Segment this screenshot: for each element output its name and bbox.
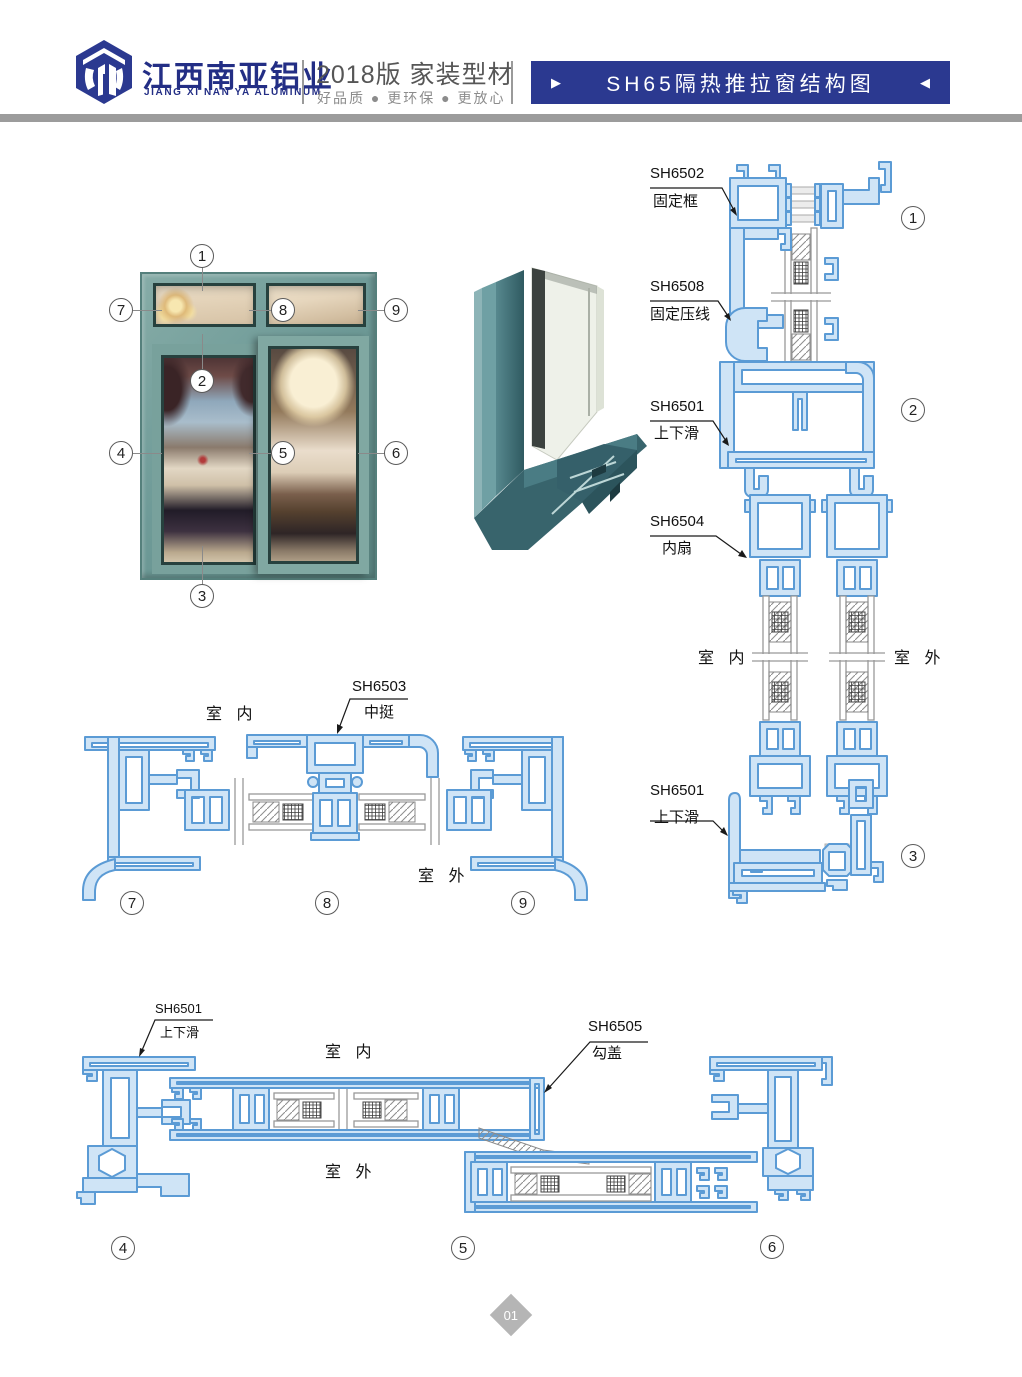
- section-callout-7: 7: [120, 891, 144, 915]
- section-callout-9: 9: [511, 891, 535, 915]
- callout-line-6: [358, 453, 386, 454]
- thermal-break-strips: [786, 184, 820, 225]
- callout-line-2: [202, 334, 203, 370]
- label-sh6503-name: 中挺: [364, 701, 394, 722]
- label-sh6503-code: SH6503: [352, 678, 406, 695]
- label-sh6501-jamb-code: SH6501: [155, 1001, 202, 1016]
- section-callout-8: 8: [315, 891, 339, 915]
- label-sh6508-code: SH6508: [650, 278, 704, 295]
- header-divider-1: [302, 60, 304, 104]
- horizontal-section-diagram-top: [85, 690, 585, 925]
- page-title: SH65隔热推拉窗结构图: [606, 68, 875, 98]
- horizontal-section-diagram-bottom: [75, 1000, 1010, 1265]
- section-callout-3: 3: [901, 844, 925, 868]
- section-callout-2: 2: [901, 398, 925, 422]
- header-rule: [0, 114, 1022, 122]
- callout-5: 5: [271, 441, 295, 465]
- callout-line-5: [249, 453, 272, 454]
- label-outdoor-a: 室 外: [894, 644, 945, 668]
- label-indoor-b: 室 内: [206, 700, 257, 724]
- sash-section-inner: [745, 495, 815, 814]
- company-name-en: JIANG XI NAN YA ALUMINUM: [144, 87, 322, 98]
- page-number-badge: 01: [490, 1294, 532, 1336]
- callout-4: 4: [109, 441, 133, 465]
- edition-text: 2018版 家装型材: [316, 55, 514, 91]
- callout-9: 9: [384, 298, 408, 322]
- label-sh6502-code: SH6502: [650, 165, 704, 182]
- catalog-page: 江西南亚铝业 JIANG XI NAN YA ALUMINUM 2018版 家装…: [0, 0, 1022, 1377]
- callout-7: 7: [109, 298, 133, 322]
- label-sh6504-code: SH6504: [650, 513, 704, 530]
- corner-profile-render: [432, 262, 657, 587]
- label-sh6501-jamb-name: 上下滑: [160, 1022, 199, 1041]
- label-outdoor-b: 室 外: [418, 862, 469, 886]
- label-sh6508-name: 固定压线: [650, 303, 710, 324]
- sash-section-outer: [822, 495, 892, 814]
- label-sh6505-code: SH6505: [588, 1018, 642, 1035]
- callout-line-1: [202, 264, 203, 291]
- label-outdoor-c: 室 外: [325, 1158, 376, 1182]
- page-number: 01: [504, 1308, 518, 1323]
- label-sh6501-top-code: SH6501: [650, 398, 704, 415]
- callout-line-9: [358, 310, 386, 311]
- header-divider-2: [511, 61, 513, 104]
- callout-line-7: [133, 310, 162, 311]
- callout-1: 1: [190, 244, 214, 268]
- label-indoor-a: 室 内: [698, 644, 749, 668]
- label-sh6504-name: 内扇: [662, 537, 692, 558]
- page-title-bar: ▶ SH65隔热推拉窗结构图 ◀: [531, 61, 950, 104]
- label-sh6502-name: 固定框: [653, 190, 698, 211]
- label-sh6505-name: 勾盖: [592, 1042, 622, 1063]
- title-arrow-left-icon: ◀: [920, 75, 930, 91]
- section-callout-5: 5: [451, 1236, 475, 1260]
- callout-6: 6: [384, 441, 408, 465]
- title-arrow-right-icon: ▶: [551, 75, 561, 91]
- slogan-text: 好品质 ● 更环保 ● 更放心: [317, 88, 505, 108]
- section-callout-4: 4: [111, 1236, 135, 1260]
- section-callout-6: 6: [760, 1235, 784, 1259]
- callout-3: 3: [190, 584, 214, 608]
- callout-2: 2: [190, 369, 214, 393]
- callout-line-3: [202, 546, 203, 585]
- label-sh6501-bottom-name: 上下滑: [654, 806, 699, 827]
- window-product-photo: [140, 272, 377, 580]
- label-indoor-c: 室 内: [325, 1038, 376, 1062]
- label-sh6501-top-name: 上下滑: [654, 422, 699, 443]
- transom-glass-left: [153, 283, 256, 327]
- section-callout-1: 1: [901, 206, 925, 230]
- company-logo-icon: [74, 38, 134, 106]
- label-sh6501-bottom-code: SH6501: [650, 782, 704, 799]
- callout-line-4: [133, 453, 162, 454]
- callout-8: 8: [271, 298, 295, 322]
- callout-line-8: [249, 310, 272, 311]
